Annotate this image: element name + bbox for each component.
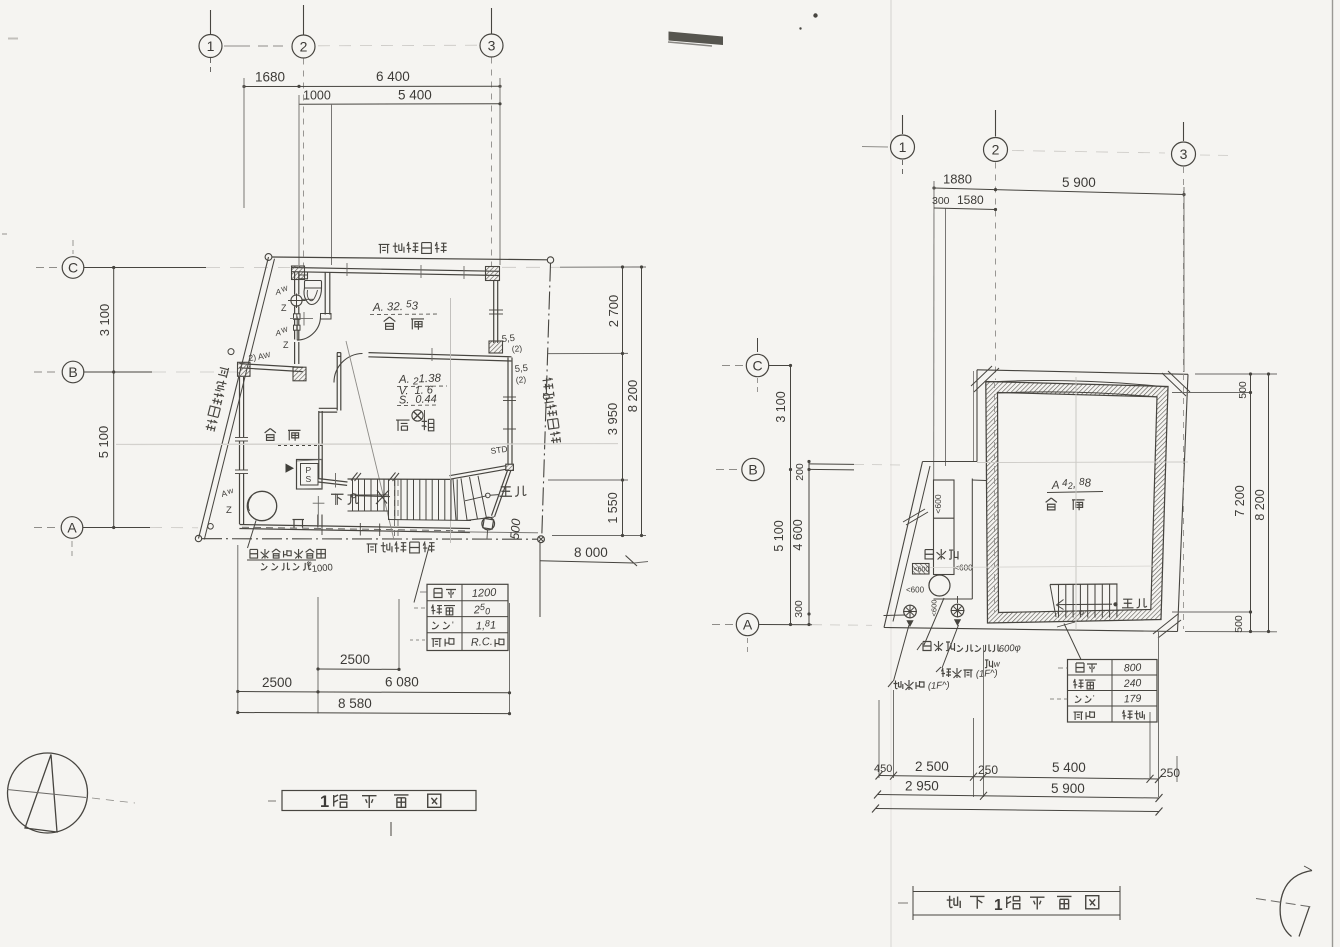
svg-text:S. 0.44: S. 0.44: [399, 393, 437, 406]
svg-text:8 200: 8 200: [1253, 489, 1267, 520]
svg-text:R.C.: R.C.: [471, 636, 494, 649]
svg-text:STD: STD: [490, 444, 508, 456]
svg-text:1580: 1580: [957, 193, 984, 207]
svg-text:1000: 1000: [311, 562, 333, 575]
svg-text:Z: Z: [226, 505, 232, 516]
svg-text:8 580: 8 580: [338, 696, 372, 711]
svg-text:5 400: 5 400: [398, 88, 432, 103]
svg-text:8 000: 8 000: [574, 545, 608, 560]
svg-text:S: S: [306, 474, 312, 484]
svg-text:250: 250: [472, 602, 490, 617]
svg-text:': ': [452, 620, 454, 630]
svg-text:(2): (2): [511, 343, 522, 354]
svg-text:5,5: 5,5: [514, 363, 528, 375]
svg-text:4 600: 4 600: [791, 519, 805, 550]
svg-text:W: W: [281, 285, 290, 294]
svg-text:3 950: 3 950: [605, 403, 620, 436]
svg-text:1: 1: [320, 793, 329, 811]
svg-text:(1F^): (1F^): [976, 668, 998, 680]
svg-text:A. 32. 53: A. 32. 53: [372, 299, 419, 314]
svg-text:1: 1: [899, 139, 907, 155]
svg-text:1000: 1000: [303, 89, 331, 103]
svg-text:6 400: 6 400: [376, 69, 410, 84]
svg-text:7 200: 7 200: [1233, 485, 1247, 516]
svg-text:2 500: 2 500: [915, 759, 949, 774]
svg-text:Z: Z: [281, 303, 287, 313]
svg-text:A: A: [67, 520, 77, 536]
svg-text:1880: 1880: [943, 172, 972, 187]
svg-text:5 900: 5 900: [1051, 781, 1085, 796]
svg-text:2: 2: [300, 39, 308, 55]
svg-text:250: 250: [978, 763, 998, 777]
svg-text:W: W: [281, 326, 290, 335]
svg-text:1680: 1680: [255, 70, 285, 85]
svg-text:B: B: [68, 364, 77, 380]
svg-text:3 100: 3 100: [97, 304, 112, 337]
svg-text:1,81: 1,81: [475, 618, 496, 633]
svg-text:500: 500: [508, 518, 524, 540]
svg-text:2: 2: [992, 142, 1000, 158]
svg-text:2 950: 2 950: [905, 779, 939, 794]
svg-text:5 400: 5 400: [1052, 760, 1086, 775]
svg-text:1 550: 1 550: [606, 492, 620, 523]
svg-text:250: 250: [1160, 766, 1180, 780]
svg-text:450: 450: [874, 763, 892, 775]
svg-text:(1F^): (1F^): [928, 680, 950, 692]
svg-text:1200: 1200: [472, 587, 498, 600]
svg-text:500: 500: [1237, 381, 1249, 399]
svg-text:2 700: 2 700: [606, 295, 621, 328]
svg-text:800: 800: [1124, 662, 1142, 675]
svg-text:3: 3: [488, 38, 496, 54]
svg-text:3 100: 3 100: [774, 391, 788, 422]
svg-text:<600: <600: [914, 567, 930, 574]
svg-text:A 42, 88: A 42, 88: [1050, 476, 1092, 492]
svg-text:C: C: [68, 260, 78, 276]
svg-text:<600: <600: [955, 564, 974, 573]
svg-text:300: 300: [932, 195, 950, 207]
svg-text:1: 1: [994, 897, 1003, 914]
svg-text:<600: <600: [933, 494, 943, 513]
svg-text:300: 300: [793, 600, 805, 618]
svg-text:(2): (2): [515, 374, 526, 385]
svg-text:6 080: 6 080: [385, 675, 419, 690]
svg-text:5 100: 5 100: [96, 426, 111, 459]
svg-text:240: 240: [1123, 677, 1142, 690]
svg-text:5 100: 5 100: [772, 520, 786, 551]
svg-text:': ': [1093, 694, 1095, 703]
svg-text:W: W: [262, 350, 272, 361]
svg-text:2500: 2500: [262, 675, 292, 690]
svg-text:600φ: 600φ: [998, 642, 1021, 655]
svg-text:C: C: [752, 358, 762, 374]
svg-text:Z: Z: [283, 340, 289, 350]
svg-text:179: 179: [1124, 693, 1142, 706]
svg-text:B: B: [748, 462, 757, 478]
svg-text:500: 500: [1233, 615, 1245, 633]
svg-text:5 900: 5 900: [1062, 175, 1096, 190]
svg-text:3: 3: [1180, 146, 1188, 162]
svg-text:A: A: [743, 617, 753, 633]
svg-text:2500: 2500: [340, 652, 370, 667]
svg-text:200: 200: [794, 463, 806, 481]
svg-text:<600: <600: [906, 586, 925, 595]
svg-text:1: 1: [207, 38, 215, 54]
svg-text:8 200: 8 200: [625, 380, 640, 413]
